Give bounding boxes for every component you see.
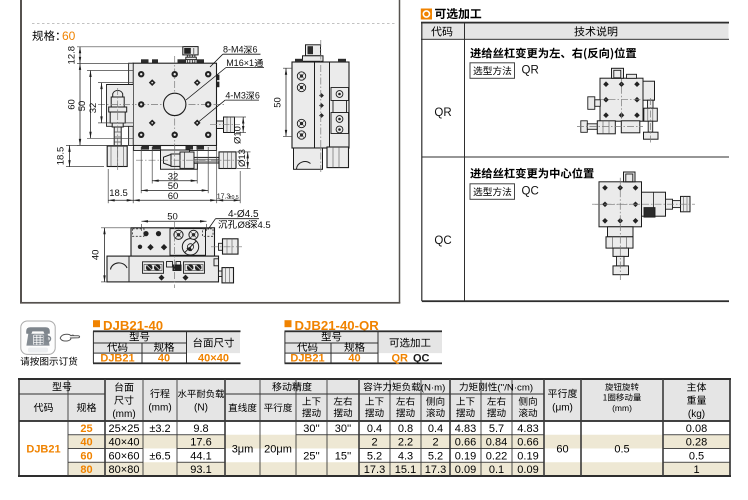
svg-text:2: 2 [432,437,438,449]
svg-text:M16×1: M16×1 [226,58,254,68]
svg-text:25×25: 25×25 [109,423,140,435]
svg-text:6: 6 [255,91,260,101]
svg-text:60: 60 [168,191,179,202]
svg-text:60: 60 [67,99,78,110]
svg-text:Ø8: Ø8 [238,220,251,231]
svg-text:(mm): (mm) [612,403,632,413]
svg-text:0.66: 0.66 [517,437,538,449]
svg-text:60×60: 60×60 [109,450,140,462]
svg-text:15.1: 15.1 [395,464,416,476]
svg-text:18.5: 18.5 [56,147,67,166]
svg-text:1: 1 [693,464,699,476]
svg-text:44.1: 44.1 [190,450,211,462]
svg-text:DJB21: DJB21 [26,444,60,456]
svg-text:30'': 30'' [335,423,351,435]
svg-text:0.66: 0.66 [455,437,476,449]
svg-text:QR: QR [434,107,451,119]
svg-text:12.8: 12.8 [67,46,78,64]
svg-text:18.5: 18.5 [109,188,128,199]
svg-text:(mm): (mm) [112,409,135,420]
svg-text:0.8: 0.8 [398,423,413,435]
svg-text:4-M3: 4-M3 [225,91,246,101]
svg-text:QR: QR [522,65,539,77]
svg-text:±6.5: ±6.5 [149,450,170,462]
svg-text:80: 80 [80,464,92,476]
svg-text:0.4: 0.4 [367,423,382,435]
svg-text:QC: QC [434,235,451,247]
svg-text:30'': 30'' [303,423,319,435]
svg-text:QC: QC [522,186,539,198]
svg-text:80×80: 80×80 [109,464,140,476]
svg-text:25'': 25'' [303,450,319,462]
svg-text:40: 40 [91,250,102,261]
svg-text:40×40: 40×40 [109,437,140,449]
svg-text:QC: QC [413,353,430,365]
svg-text:0.09: 0.09 [455,464,476,476]
svg-text:3μm: 3μm [232,444,254,456]
svg-text:0.22: 0.22 [486,450,507,462]
svg-text:±3.2: ±3.2 [149,423,170,435]
svg-text:(''/N·cm): (''/N·cm) [497,382,533,393]
svg-text:4.5: 4.5 [258,220,271,231]
svg-text:0.5: 0.5 [614,444,629,456]
svg-text:4.83: 4.83 [455,423,476,435]
svg-text:0.19: 0.19 [455,450,476,462]
svg-text:32: 32 [88,103,99,114]
svg-text:0.84: 0.84 [486,437,507,449]
svg-text:4.3: 4.3 [398,450,413,462]
svg-text:6: 6 [253,45,258,55]
svg-text:5.2: 5.2 [428,450,443,462]
svg-text:60: 60 [62,29,76,43]
svg-text:±0.5: ±0.5 [229,195,239,201]
svg-text:0.09: 0.09 [517,464,538,476]
svg-text:0.5: 0.5 [689,450,704,462]
svg-text:5.7: 5.7 [489,423,504,435]
svg-text:0.1: 0.1 [489,464,504,476]
svg-text:0.19: 0.19 [517,450,538,462]
svg-text:DJB21: DJB21 [290,353,324,365]
svg-text:17.3: 17.3 [425,464,446,476]
svg-text:40×40: 40×40 [198,353,229,365]
svg-text:17.3: 17.3 [364,464,385,476]
svg-text:(kg): (kg) [688,409,705,420]
svg-text:(N): (N) [194,403,208,414]
svg-text:25: 25 [80,423,92,435]
svg-text:50: 50 [273,97,284,108]
svg-text:2: 2 [371,437,377,449]
svg-text:0.08: 0.08 [686,423,707,435]
svg-text:Ø10: Ø10 [232,126,243,144]
svg-text:Ø13: Ø13 [237,149,248,167]
svg-text:20μm: 20μm [264,444,292,456]
svg-text:QR: QR [392,353,409,365]
svg-text:60: 60 [80,450,92,462]
svg-text:40: 40 [80,437,92,449]
svg-text:(μm): (μm) [552,403,573,414]
svg-text:40: 40 [348,353,360,365]
svg-text:9.8: 9.8 [193,423,208,435]
svg-text:0.4: 0.4 [428,423,443,435]
svg-text:(mm): (mm) [148,403,171,414]
svg-text:(N·m): (N·m) [421,382,446,393]
svg-text:40: 40 [158,353,170,365]
svg-text:0.28: 0.28 [686,437,707,449]
svg-text:15'': 15'' [335,450,351,462]
svg-text:17.6: 17.6 [190,437,211,449]
svg-text:50: 50 [167,211,178,222]
svg-text:DJB21: DJB21 [100,353,134,365]
svg-text:93.1: 93.1 [190,464,211,476]
svg-text:4.83: 4.83 [517,423,538,435]
svg-text:50: 50 [77,101,88,112]
svg-text:60: 60 [556,444,568,456]
svg-text:4-Ø4.5: 4-Ø4.5 [228,209,259,220]
svg-text:5.2: 5.2 [367,450,382,462]
svg-text:2.2: 2.2 [398,437,413,449]
svg-text:8-M4: 8-M4 [223,45,244,55]
